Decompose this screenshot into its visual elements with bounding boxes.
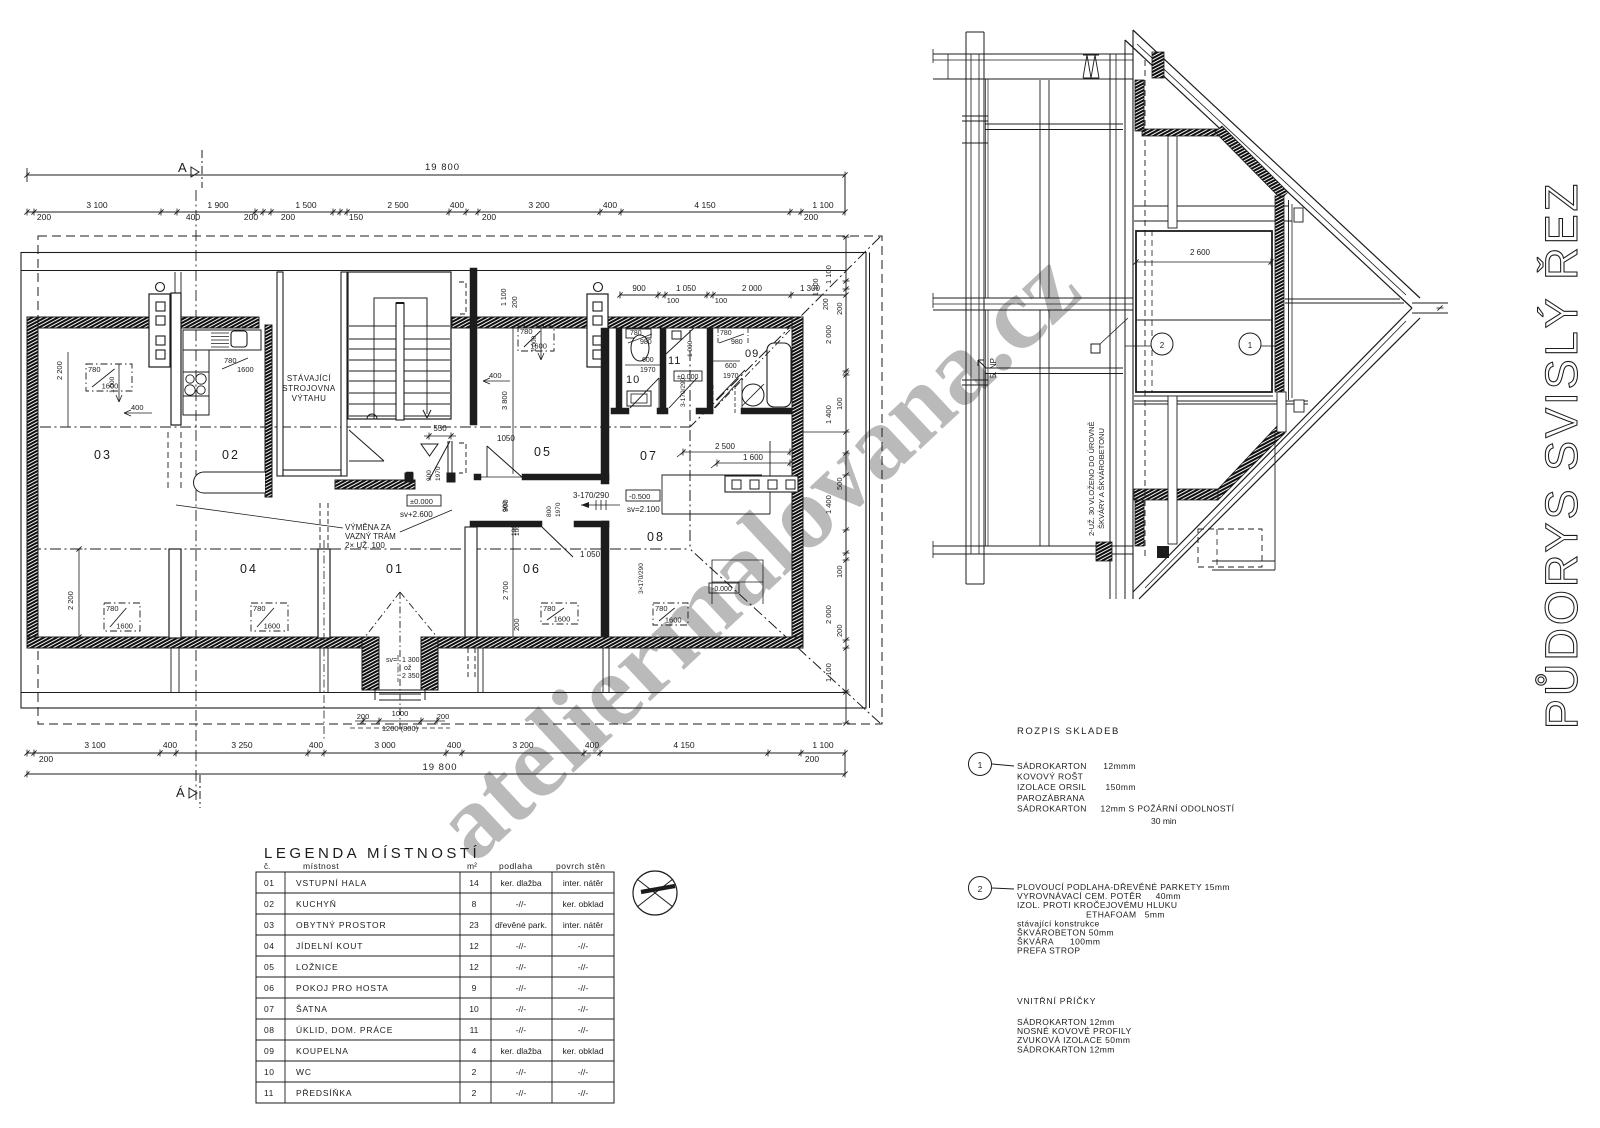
svg-text:1 100: 1 100 (812, 200, 834, 210)
svg-text:12: 12 (469, 962, 479, 972)
svg-text:2: 2 (1160, 341, 1165, 350)
svg-text:06: 06 (264, 983, 274, 993)
svg-text:-0.500: -0.500 (629, 492, 650, 501)
svg-text:400: 400 (309, 740, 323, 750)
svg-text:-//-: -//- (516, 1088, 527, 1098)
svg-text:ÚKLID, DOM. PRÁCE: ÚKLID, DOM. PRÁCE (296, 1025, 393, 1035)
svg-text:1 100: 1 100 (824, 663, 833, 682)
svg-text:800: 800 (546, 506, 553, 517)
svg-text:200: 200 (244, 212, 258, 222)
svg-text:VSTUPNÍ HALA: VSTUPNÍ HALA (296, 878, 367, 888)
svg-text:Á: Á (176, 785, 185, 800)
svg-text:m²: m² (467, 861, 477, 871)
svg-text:WC: WC (296, 1067, 312, 1077)
svg-text:900: 900 (632, 284, 646, 293)
svg-text:2 700: 2 700 (501, 581, 510, 600)
svg-text:2 000: 2 000 (824, 605, 833, 624)
svg-text:780: 780 (543, 604, 556, 613)
svg-text:-0.000: -0.000 (712, 586, 732, 593)
svg-text:3 100: 3 100 (86, 200, 108, 210)
svg-text:ker. dlažba: ker. dlažba (500, 1046, 541, 1056)
svg-text:200: 200 (804, 212, 818, 222)
svg-text:12: 12 (469, 941, 479, 951)
svg-text:povrch stěn: povrch stěn (556, 861, 605, 871)
svg-text:3 000: 3 000 (374, 740, 396, 750)
svg-text:VAZNÝ TRÁM: VAZNÝ TRÁM (345, 532, 396, 541)
svg-text:KOVOVÝ ROŠT: KOVOVÝ ROŠT (1017, 772, 1083, 782)
svg-text:ŠKVÁRY A ŠKVÁROBETONU: ŠKVÁRY A ŠKVÁROBETONU (1097, 428, 1106, 529)
svg-text:STÁVAJÍCÍ: STÁVAJÍCÍ (287, 374, 332, 383)
svg-text:05: 05 (534, 445, 552, 459)
svg-text:č.: č. (264, 862, 270, 871)
svg-text:2 000: 2 000 (742, 284, 763, 293)
svg-text:10: 10 (626, 374, 640, 386)
svg-text:1 000: 1 000 (109, 376, 116, 393)
svg-text:ker. dlažba: ker. dlažba (500, 878, 541, 888)
svg-text:-//-: -//- (516, 941, 527, 951)
svg-text:11: 11 (668, 355, 681, 367)
svg-text:2× UŽ. 100: 2× UŽ. 100 (345, 541, 385, 550)
svg-text:-//-: -//- (516, 962, 527, 972)
svg-text:19 800: 19 800 (422, 762, 457, 773)
svg-text:4: 4 (472, 1046, 477, 1056)
svg-text:-//-: -//- (516, 899, 527, 909)
svg-text:150: 150 (349, 212, 363, 222)
svg-text:1600: 1600 (264, 622, 281, 631)
svg-text:600: 600 (725, 363, 737, 370)
svg-text:VÝMĚNA ZA: VÝMĚNA ZA (345, 523, 391, 532)
svg-text:2 000: 2 000 (824, 325, 833, 344)
svg-text:30 min: 30 min (1151, 816, 1177, 826)
svg-text:2 200: 2 200 (55, 361, 64, 380)
svg-text:07: 07 (264, 1004, 274, 1014)
svg-text:2: 2 (472, 1088, 477, 1098)
svg-text:3 800: 3 800 (500, 391, 509, 410)
svg-text:600: 600 (642, 357, 654, 364)
svg-text:14: 14 (469, 878, 479, 888)
svg-text:1 100: 1 100 (501, 288, 508, 306)
svg-text:ker. obklad: ker. obklad (562, 899, 603, 909)
svg-text:200: 200 (482, 212, 496, 222)
svg-text:780: 780 (655, 604, 668, 613)
svg-text:02: 02 (264, 899, 274, 909)
svg-text:-//-: -//- (578, 1004, 589, 1014)
svg-text:1 400: 1 400 (824, 405, 833, 424)
svg-text:SÁDROKARTON 12mmm: SÁDROKARTON 12mmm (1017, 761, 1136, 771)
svg-text:09: 09 (745, 348, 759, 360)
svg-text:200: 200 (835, 624, 844, 637)
svg-text:780: 780 (88, 365, 101, 374)
svg-text:400: 400 (163, 740, 177, 750)
svg-text:ker. obklad: ker. obklad (562, 1046, 603, 1056)
svg-text:23: 23 (469, 920, 479, 930)
svg-text:500: 500 (835, 477, 844, 490)
svg-text:100: 100 (514, 525, 521, 536)
svg-text:05: 05 (264, 962, 274, 972)
svg-text:3 100: 3 100 (84, 740, 106, 750)
svg-text:09: 09 (264, 1046, 274, 1056)
svg-text:PREFA STROP: PREFA STROP (1017, 946, 1080, 956)
svg-text:2: 2 (978, 884, 983, 894)
svg-text:10: 10 (469, 1004, 479, 1014)
svg-text:1 400: 1 400 (824, 495, 833, 514)
svg-text:sv+2.600: sv+2.600 (400, 510, 433, 519)
svg-text:2 500: 2 500 (715, 442, 736, 451)
svg-text:VNITŘNÍ PŘÍČKY: VNITŘNÍ PŘÍČKY (1017, 996, 1096, 1006)
svg-text:1 100: 1 100 (813, 278, 820, 296)
svg-text:400: 400 (603, 200, 617, 210)
svg-text:A: A (178, 160, 187, 175)
svg-text:LOŽNICE: LOŽNICE (296, 962, 338, 972)
svg-text:-//-: -//- (578, 1067, 589, 1077)
svg-text:400: 400 (186, 212, 200, 222)
svg-text:200: 200 (39, 754, 53, 764)
svg-text:PŘEDSÍŇKA: PŘEDSÍŇKA (296, 1088, 352, 1098)
svg-text:sv=2.100: sv=2.100 (627, 505, 660, 514)
svg-text:03: 03 (94, 448, 112, 462)
svg-text:-//-: -//- (516, 1004, 527, 1014)
svg-text:900: 900 (426, 470, 433, 481)
svg-text:VÝTAHU: VÝTAHU (292, 394, 327, 403)
svg-text:KOUPELNA: KOUPELNA (296, 1046, 349, 1056)
svg-text:místnost: místnost (303, 861, 339, 871)
svg-text:1600: 1600 (554, 615, 571, 624)
svg-text:2 500: 2 500 (387, 200, 409, 210)
svg-text:4 150: 4 150 (673, 740, 695, 750)
svg-text:400: 400 (489, 371, 502, 380)
svg-text:SÁDROKARTON 12mm: SÁDROKARTON 12mm (1017, 1044, 1115, 1054)
svg-text:980: 980 (640, 339, 652, 346)
svg-text:1000: 1000 (392, 709, 409, 718)
svg-text:3×170/290: 3×170/290 (638, 563, 645, 594)
svg-text:780: 780 (720, 330, 732, 337)
svg-text:980: 980 (731, 339, 743, 346)
svg-text:sv=: sv= (386, 657, 397, 664)
svg-text:3 200: 3 200 (512, 740, 534, 750)
svg-text:200: 200 (37, 212, 51, 222)
svg-text:10: 10 (264, 1067, 274, 1077)
svg-text:inter. nátěr: inter. nátěr (563, 920, 603, 930)
svg-text:2-UŽ. 30 VLOŽENO DO ÚROVNĚ: 2-UŽ. 30 VLOŽENO DO ÚROVNĚ (1087, 421, 1096, 536)
svg-text:2: 2 (472, 1067, 477, 1077)
svg-text:SÁDROKARTON 12mm S POŽÁRNÍ: SÁDROKARTON 12mm S POŽÁRNÍ ODOLNOSTÍ (1017, 803, 1235, 813)
svg-text:1600: 1600 (237, 365, 254, 374)
svg-text:08: 08 (264, 1025, 274, 1035)
svg-text:01: 01 (264, 878, 274, 888)
svg-text:STROJOVNA: STROJOVNA (282, 384, 336, 393)
svg-text:ož: ož (404, 665, 412, 672)
svg-text:-//-: -//- (516, 1067, 527, 1077)
svg-text:-//-: -//- (516, 983, 527, 993)
svg-text:4 150: 4 150 (694, 200, 716, 210)
svg-text:ŠATNA: ŠATNA (296, 1004, 328, 1014)
svg-text:03: 03 (264, 920, 274, 930)
svg-text:1 050: 1 050 (676, 284, 697, 293)
svg-text:1200 (800): 1200 (800) (382, 724, 419, 733)
svg-text:5. NP: 5. NP (989, 358, 998, 378)
svg-text:-//-: -//- (578, 983, 589, 993)
svg-text:inter. nátěr: inter. nátěr (563, 878, 603, 888)
svg-text:02: 02 (222, 448, 240, 462)
svg-text:2 200: 2 200 (66, 591, 75, 610)
svg-text:1970: 1970 (555, 502, 562, 517)
svg-text:04: 04 (264, 941, 274, 951)
svg-text:1 500: 1 500 (295, 200, 317, 210)
svg-text:100: 100 (715, 296, 728, 305)
svg-text:400: 400 (447, 740, 461, 750)
svg-text:100: 100 (835, 397, 844, 410)
svg-text:KUCHYŇ: KUCHYŇ (296, 899, 337, 909)
svg-text:IZOLACE ORSIL 150mm: IZOLACE ORSIL 150mm (1017, 782, 1136, 792)
svg-text:1: 1 (1248, 341, 1253, 350)
svg-text:01: 01 (386, 562, 404, 576)
svg-text:-//-: -//- (578, 1025, 589, 1035)
svg-text:900: 900 (501, 499, 510, 512)
svg-text:100: 100 (835, 565, 844, 578)
svg-text:07: 07 (640, 449, 658, 463)
svg-text:200: 200 (805, 754, 819, 764)
svg-text:1600: 1600 (116, 622, 133, 631)
svg-text:400: 400 (450, 200, 464, 210)
svg-text:3-170/290: 3-170/290 (573, 491, 610, 500)
svg-text:3 200: 3 200 (528, 200, 550, 210)
svg-text:-//-: -//- (578, 1088, 589, 1098)
svg-text:1050: 1050 (497, 434, 515, 443)
svg-text:PŮDORYS SVISLÝ ŘEZ: PŮDORYS SVISLÝ ŘEZ (1536, 181, 1587, 729)
svg-text:1 300: 1 300 (402, 657, 420, 664)
svg-text:-//-: -//- (578, 962, 589, 972)
svg-text:200: 200 (512, 618, 521, 631)
svg-text:19 800: 19 800 (425, 162, 460, 173)
svg-text:1 900: 1 900 (207, 200, 229, 210)
svg-text:200: 200 (823, 298, 830, 310)
svg-text:PAROZÁBRANA: PAROZÁBRANA (1017, 793, 1085, 803)
svg-text:1970: 1970 (435, 466, 442, 481)
svg-text:podlaha: podlaha (499, 861, 533, 871)
svg-text:LEGENDA MÍSTNOSTÍ: LEGENDA MÍSTNOSTÍ (264, 845, 480, 862)
svg-text:04: 04 (240, 562, 258, 576)
svg-text:200: 200 (281, 212, 295, 222)
svg-text:2 600: 2 600 (1190, 248, 1211, 257)
svg-text:200: 200 (512, 296, 519, 308)
svg-text:1 000: 1 000 (531, 335, 538, 352)
svg-text:3 250: 3 250 (231, 740, 253, 750)
svg-text:11: 11 (264, 1088, 274, 1098)
svg-text:-//-: -//- (578, 941, 589, 951)
svg-text:550: 550 (433, 424, 447, 433)
svg-text:1: 1 (978, 760, 983, 770)
svg-text:1 000: 1 000 (687, 340, 694, 357)
svg-text:1 100: 1 100 (812, 740, 834, 750)
svg-text:780: 780 (630, 330, 642, 337)
svg-text:100: 100 (667, 296, 680, 305)
svg-text:POKOJ PRO HOSTA: POKOJ PRO HOSTA (296, 983, 389, 993)
svg-text:11: 11 (470, 1025, 479, 1035)
svg-text:1 100: 1 100 (824, 265, 833, 284)
svg-text:780: 780 (520, 327, 533, 336)
svg-text:200: 200 (835, 302, 844, 315)
svg-text:2 350: 2 350 (402, 673, 420, 680)
svg-text:1600: 1600 (665, 616, 682, 625)
svg-text:9: 9 (472, 983, 477, 993)
svg-text:dřevěné park.: dřevěné park. (495, 920, 547, 930)
svg-text:1 050: 1 050 (580, 550, 601, 559)
svg-text:OBYTNÝ PROSTOR: OBYTNÝ PROSTOR (296, 920, 386, 930)
svg-text:780: 780 (253, 604, 266, 613)
svg-text:06: 06 (523, 562, 541, 576)
svg-text:3-170/290: 3-170/290 (680, 377, 687, 407)
svg-text:08: 08 (647, 530, 665, 544)
svg-text:-//-: -//- (516, 1025, 527, 1035)
svg-text:ROZPIS SKLADEB: ROZPIS SKLADEB (1017, 726, 1120, 737)
svg-text:400: 400 (585, 740, 599, 750)
svg-text:8: 8 (472, 899, 477, 909)
svg-text:400: 400 (131, 403, 144, 412)
svg-text:1970: 1970 (640, 367, 656, 374)
svg-text:1 600: 1 600 (743, 453, 764, 462)
svg-text:780: 780 (106, 604, 119, 613)
svg-text:JÍDELNÍ KOUT: JÍDELNÍ KOUT (296, 941, 363, 951)
svg-text:±0.000: ±0.000 (410, 497, 433, 506)
